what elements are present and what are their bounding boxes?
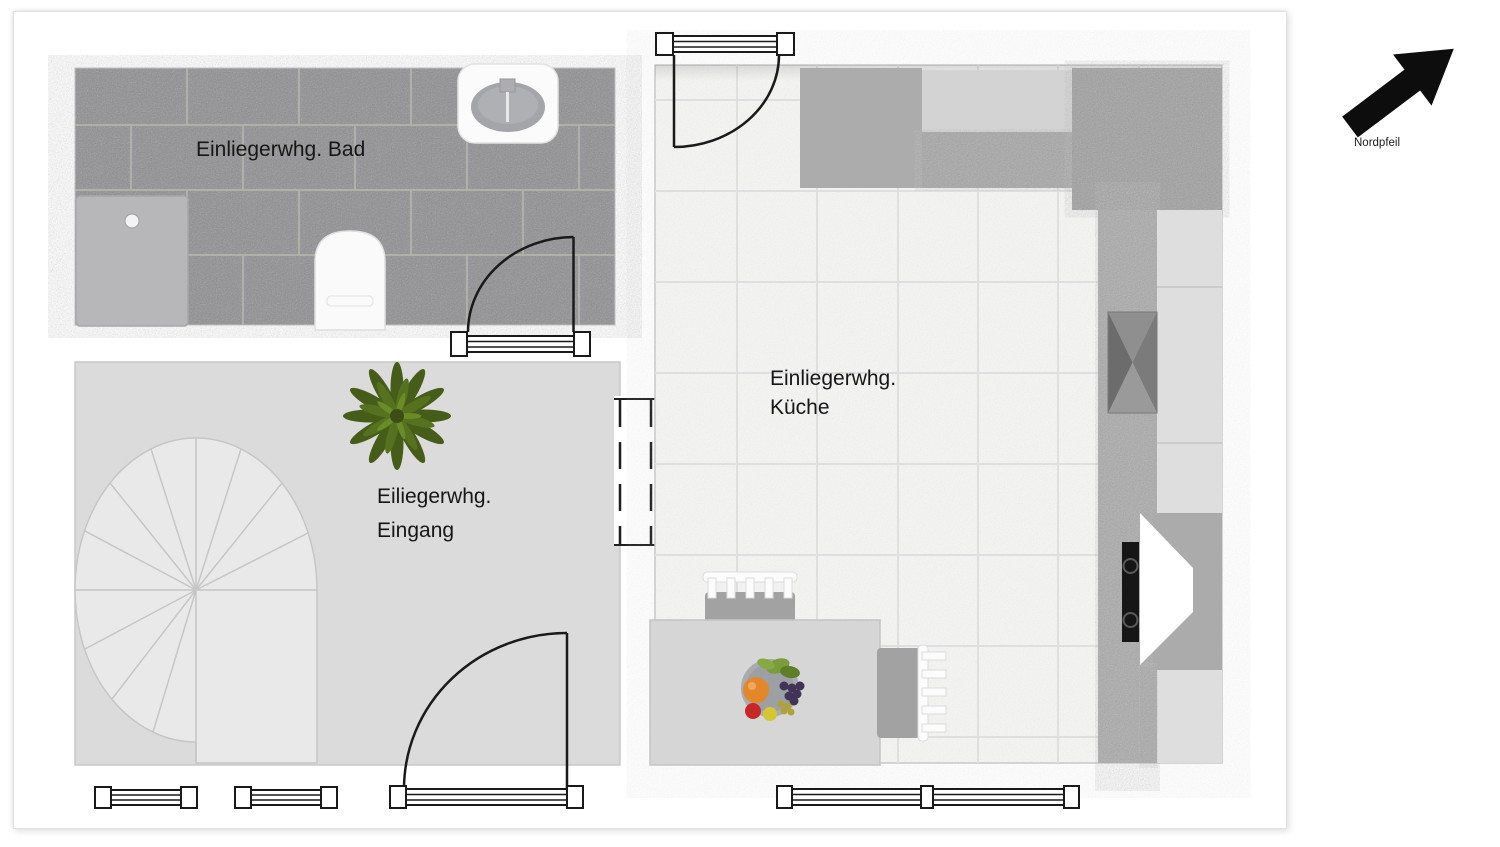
window-kitchen-double <box>777 786 1079 808</box>
door-post <box>656 33 673 55</box>
door-post <box>574 332 590 356</box>
faucet-icon <box>500 79 515 92</box>
appliance-block <box>800 68 922 188</box>
washbasin <box>458 64 558 143</box>
window-bottom-left-1 <box>95 787 197 808</box>
window-bottom-left-2 <box>235 787 337 808</box>
north-arrow-label: Nordpfeil <box>1354 137 1400 149</box>
toilet <box>315 231 385 330</box>
kitchen-counters-right <box>1098 210 1222 763</box>
entrance-room: Eiliegerwhg. Eingang <box>75 362 620 808</box>
shower-drain <box>125 214 139 228</box>
north-arrow-icon <box>1331 23 1473 152</box>
door-post <box>567 786 583 808</box>
shower-tray <box>76 196 188 326</box>
bathroom-label: Einliegerwhg. Bad <box>196 138 365 161</box>
entrance-label-line1: Eiliegerwhg. <box>377 485 491 508</box>
wall-opening <box>614 396 656 546</box>
kitchen-sink <box>1108 312 1157 413</box>
floor-plan-drawing: Einliegerwhg. Bad <box>0 0 1500 847</box>
kitchen: Einliegerwhg. Küche <box>650 33 1222 765</box>
bathroom: Einliegerwhg. Bad <box>75 64 615 356</box>
entrance-label-line2: Eingang <box>377 519 454 542</box>
door-post <box>451 332 467 356</box>
floor-plan-page: Einliegerwhg. Bad <box>0 0 1500 847</box>
cabinet-strip <box>1157 210 1222 763</box>
counter-strip-lower <box>1140 667 1157 763</box>
kitchen-label-line2: Küche <box>770 396 830 419</box>
door-post <box>390 786 406 808</box>
kitchen-label-line1: Einliegerwhg. <box>770 367 896 390</box>
cabinet-block <box>922 70 1072 132</box>
door-post <box>777 33 794 55</box>
corner-counter <box>1072 68 1222 210</box>
counter-speckled <box>922 132 1072 188</box>
north-arrow: Nordpfeil <box>1331 23 1473 152</box>
